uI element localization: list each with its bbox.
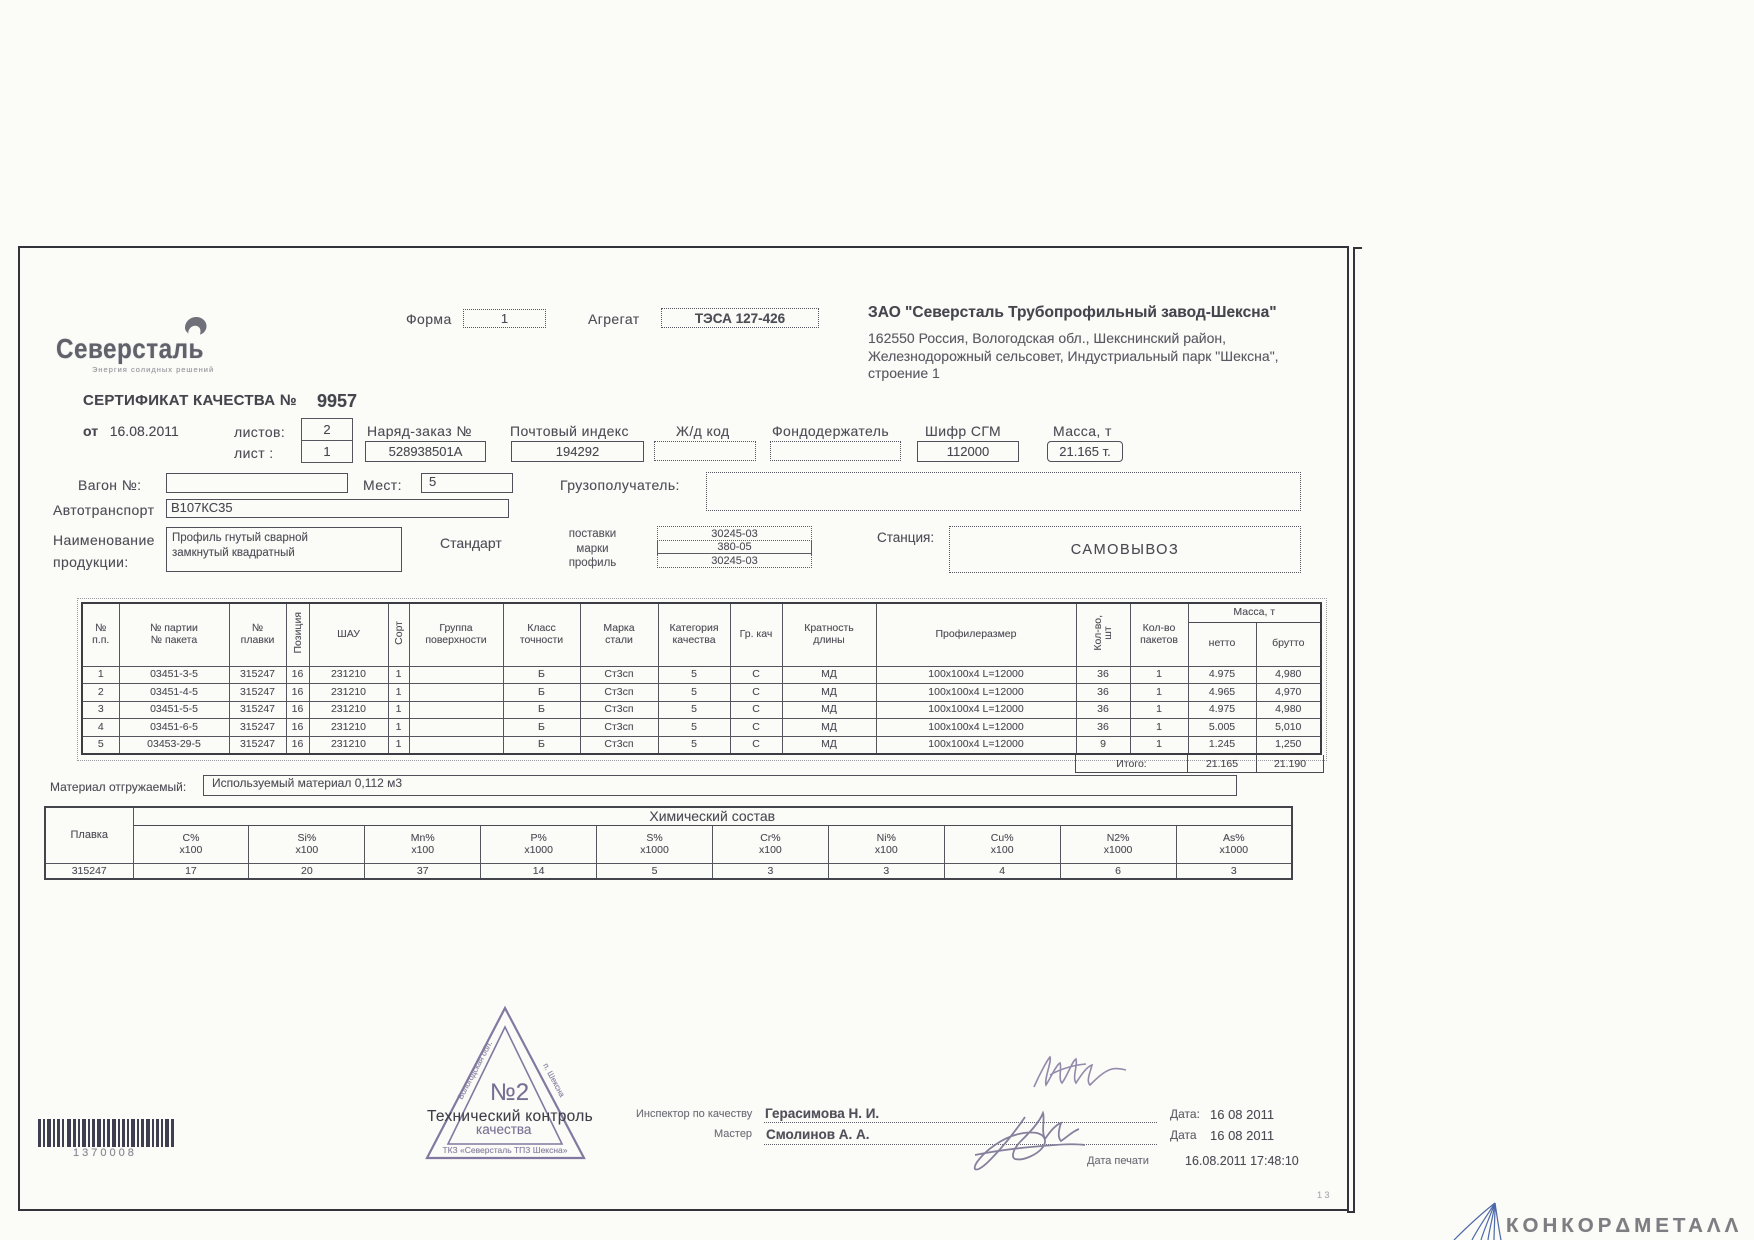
svg-text:Вологодская обл.: Вологодская обл. <box>456 1040 494 1101</box>
svg-text:ТКЗ «Северсталь ТПЗ Шексна»: ТКЗ «Северсталь ТПЗ Шексна» <box>442 1145 567 1155</box>
svg-text:№2: №2 <box>490 1079 529 1106</box>
svg-text:п. Шексна: п. Шексна <box>541 1062 567 1099</box>
